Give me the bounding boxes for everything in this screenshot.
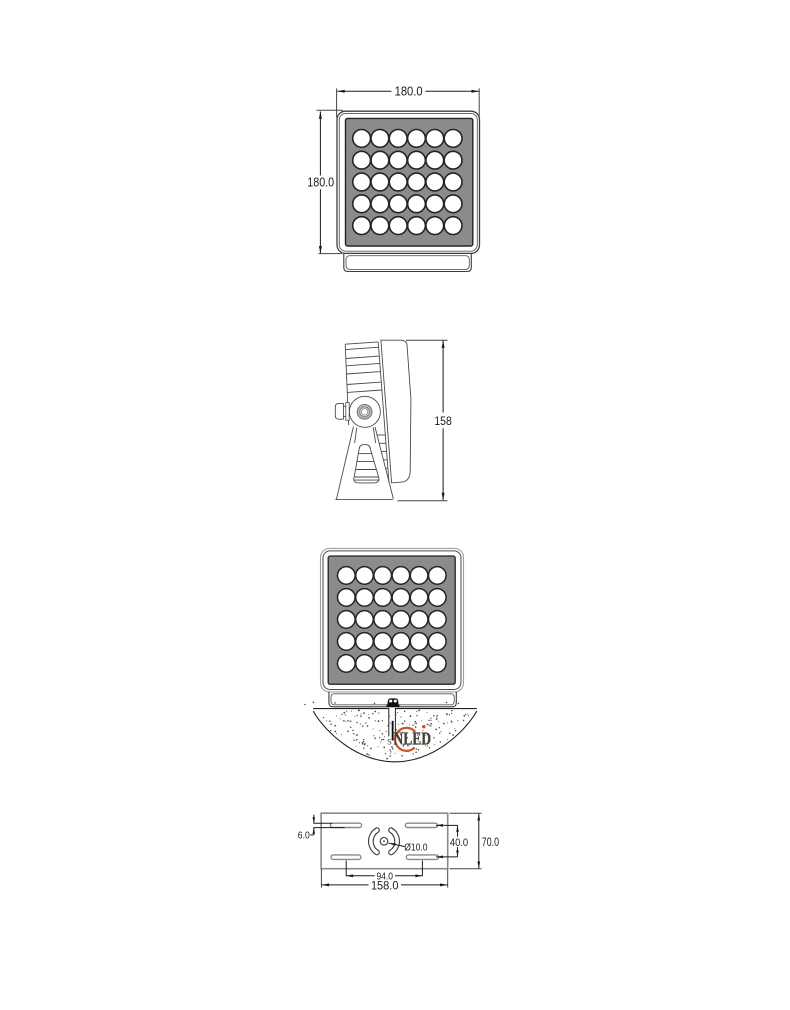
svg-text:Ø10.0: Ø10.0 xyxy=(404,842,428,853)
svg-text:s: s xyxy=(387,733,392,747)
svg-text:158.0: 158.0 xyxy=(371,879,399,892)
svg-text:70.0: 70.0 xyxy=(482,836,499,849)
svg-text:180.0: 180.0 xyxy=(307,175,334,190)
svg-text:158: 158 xyxy=(434,414,452,428)
svg-text:180.0: 180.0 xyxy=(395,83,423,98)
svg-text:6.0: 6.0 xyxy=(298,831,310,842)
svg-text:40.0: 40.0 xyxy=(450,837,468,849)
svg-text:NLED: NLED xyxy=(394,729,432,749)
